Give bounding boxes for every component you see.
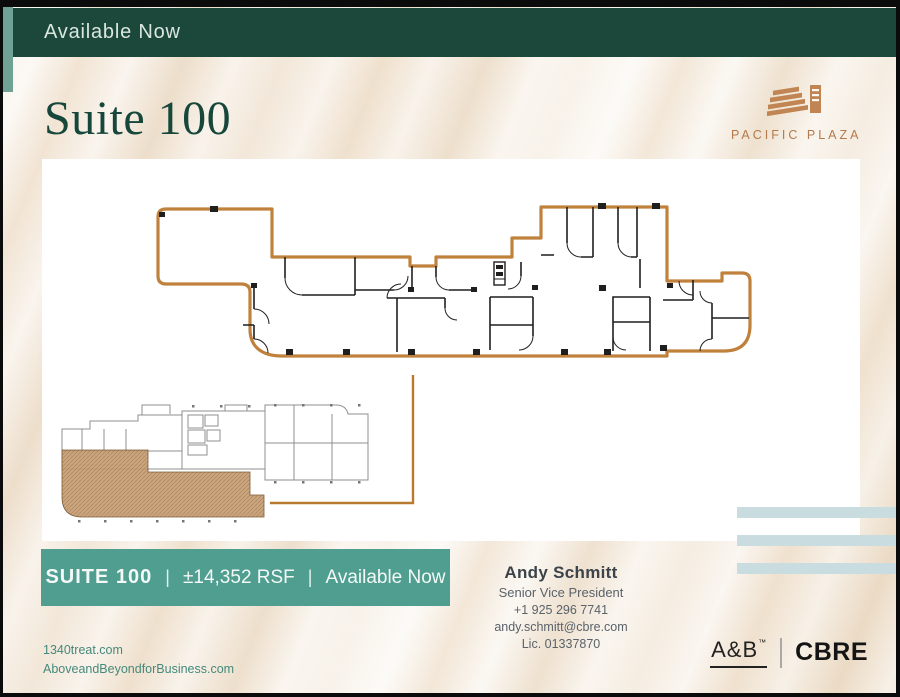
contact-card: Andy Schmitt Senior Vice President +1 92…	[455, 563, 667, 651]
main-floorplan	[158, 203, 750, 356]
page-title: Suite 100	[44, 91, 231, 146]
page-frame: Available Now Suite 100	[0, 0, 900, 697]
left-accent-strip	[3, 7, 13, 92]
contact-license: Lic. 01337870	[455, 637, 667, 651]
availability-banner: Available Now	[3, 8, 896, 57]
floorplan-svg	[42, 159, 860, 541]
ab-logo-trademark: ™	[758, 638, 766, 647]
footer-link-treat[interactable]: 1340treat.com	[43, 641, 234, 660]
availability-banner-label: Available Now	[44, 21, 181, 44]
footer-link-aboveandbeyond[interactable]: AboveandBeyondforBusiness.com	[43, 660, 234, 679]
suite-info-bar: SUITE 100 | ±14,352 RSF | Available Now	[41, 549, 450, 606]
brand-name: PACIFIC PLAZA	[731, 128, 861, 142]
suite-info-name: SUITE 100	[45, 566, 152, 589]
pacific-plaza-logo: PACIFIC PLAZA	[731, 79, 861, 142]
decor-stripe-3	[737, 563, 896, 574]
logo-divider	[780, 638, 782, 668]
flyer-page: Available Now Suite 100	[3, 7, 896, 693]
footer-links: 1340treat.com AboveandBeyondforBusiness.…	[43, 641, 234, 680]
footer-logos: A&B ™ CBRE	[710, 637, 868, 668]
contact-email[interactable]: andy.schmitt@cbre.com	[455, 620, 667, 634]
ab-logo: A&B ™	[710, 637, 767, 668]
suite-info-size: ±14,352 RSF	[183, 567, 295, 589]
separator: |	[308, 567, 313, 588]
contact-phone[interactable]: +1 925 296 7741	[455, 603, 667, 617]
decor-stripe-1	[737, 507, 896, 518]
key-plan	[62, 404, 368, 523]
leader-line	[270, 375, 413, 503]
separator: |	[165, 567, 170, 588]
decor-stripe-2	[737, 535, 896, 546]
contact-name: Andy Schmitt	[455, 563, 667, 583]
cbre-logo: CBRE	[795, 638, 868, 667]
suite-info-availability: Available Now	[325, 567, 445, 589]
contact-role: Senior Vice President	[455, 585, 667, 600]
floorplan-panel	[42, 159, 860, 541]
ab-logo-text: A&B	[711, 637, 758, 663]
building-icon	[765, 106, 827, 123]
